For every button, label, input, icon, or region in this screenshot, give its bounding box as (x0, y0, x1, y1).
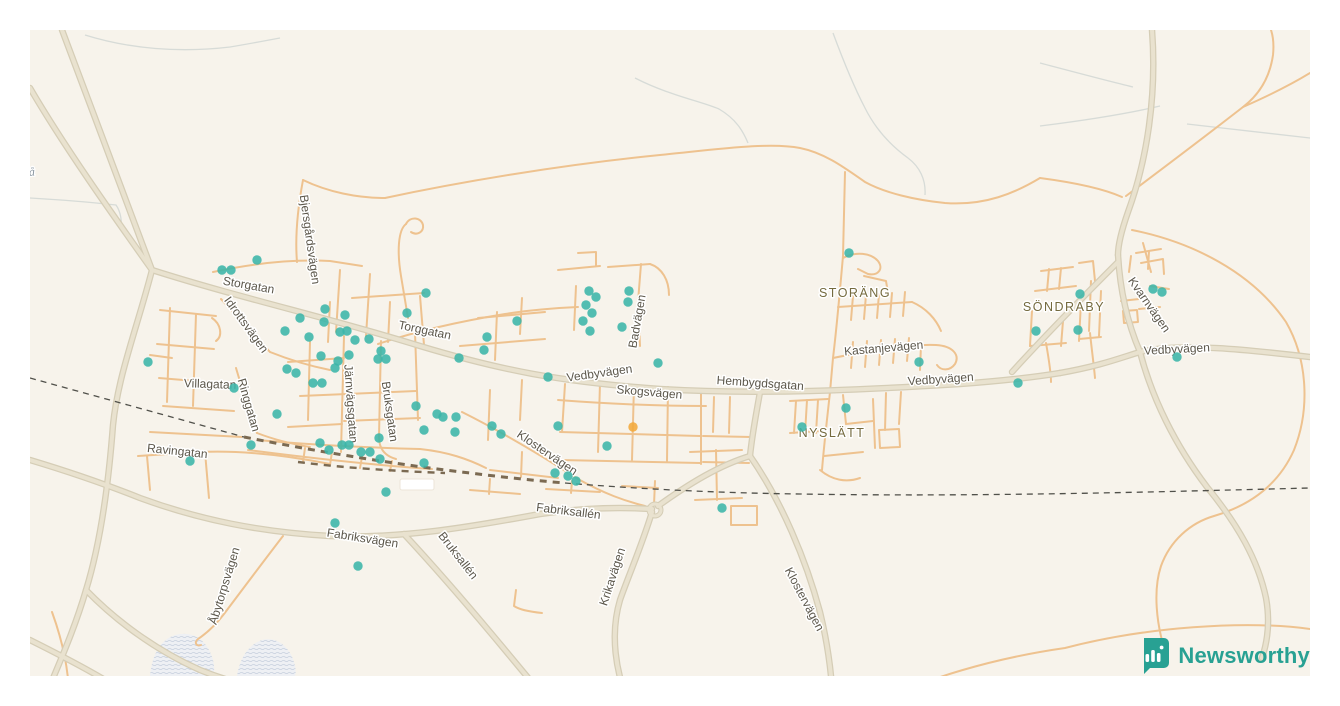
map-marker[interactable] (374, 433, 383, 442)
map-marker[interactable] (419, 458, 428, 467)
map-marker[interactable] (282, 364, 291, 373)
map-marker[interactable] (543, 372, 552, 381)
map-marker[interactable] (317, 378, 326, 387)
map-marker[interactable] (1031, 326, 1040, 335)
map-marker[interactable] (344, 350, 353, 359)
map-marker[interactable] (402, 308, 411, 317)
map-marker[interactable] (479, 345, 488, 354)
map-marker[interactable] (280, 326, 289, 335)
map-marker[interactable] (482, 332, 491, 341)
map-marker[interactable] (295, 313, 304, 322)
map-marker[interactable] (316, 351, 325, 360)
map-marker[interactable] (217, 265, 226, 274)
map-marker[interactable] (591, 292, 600, 301)
map-marker[interactable] (844, 248, 853, 257)
map-marker[interactable] (628, 422, 637, 431)
area-label: NYSLÄTT (799, 426, 866, 440)
newsworthy-chart-pin-icon (1139, 638, 1169, 674)
map-marker[interactable] (320, 304, 329, 313)
map-marker[interactable] (342, 326, 351, 335)
map-marker[interactable] (454, 353, 463, 362)
area-label: SÖNDRABY (1023, 300, 1105, 314)
map-marker[interactable] (617, 322, 626, 331)
map-screenshot: StorgatanIdrottsvägenBjersgårdsvägenVill… (0, 0, 1340, 706)
map-marker[interactable] (1148, 284, 1157, 293)
map-marker[interactable] (272, 409, 281, 418)
map-marker[interactable] (623, 297, 632, 306)
newsworthy-logo-text: Newsworthy (1178, 643, 1310, 669)
map-marker[interactable] (229, 383, 238, 392)
map-marker[interactable] (653, 358, 662, 367)
map-marker[interactable] (376, 346, 385, 355)
map-marker[interactable] (340, 310, 349, 319)
map-marker[interactable] (487, 421, 496, 430)
map-marker[interactable] (381, 487, 390, 496)
map-marker[interactable] (563, 471, 572, 480)
map-marker[interactable] (324, 445, 333, 454)
map-marker[interactable] (450, 427, 459, 436)
map-marker[interactable] (841, 403, 850, 412)
map-marker[interactable] (624, 286, 633, 295)
map-marker[interactable] (330, 363, 339, 372)
map-marker[interactable] (797, 422, 806, 431)
map-marker[interactable] (411, 401, 420, 410)
map-marker[interactable] (1075, 289, 1084, 298)
map-marker[interactable] (373, 354, 382, 363)
map-marker[interactable] (496, 429, 505, 438)
map-marker[interactable] (291, 368, 300, 377)
map-marker[interactable] (451, 412, 460, 421)
building-footprint (400, 479, 434, 490)
map-marker[interactable] (1073, 325, 1082, 334)
map-marker[interactable] (353, 561, 362, 570)
map-marker[interactable] (578, 316, 587, 325)
map-marker[interactable] (1172, 352, 1181, 361)
map-marker[interactable] (344, 440, 353, 449)
map-marker[interactable] (330, 518, 339, 527)
map-marker[interactable] (304, 332, 313, 341)
map-marker[interactable] (602, 441, 611, 450)
map-marker[interactable] (585, 326, 594, 335)
map-marker[interactable] (581, 300, 590, 309)
map-marker[interactable] (587, 308, 596, 317)
map-marker[interactable] (571, 476, 580, 485)
map-marker[interactable] (421, 288, 430, 297)
map-marker[interactable] (356, 447, 365, 456)
map-marker[interactable] (1157, 287, 1166, 296)
map-marker[interactable] (375, 454, 384, 463)
map-canvas[interactable]: StorgatanIdrottsvägenBjersgårdsvägenVill… (0, 0, 1340, 706)
map-marker[interactable] (246, 440, 255, 449)
map-marker[interactable] (226, 265, 235, 274)
map-marker[interactable] (438, 412, 447, 421)
map-marker[interactable] (553, 421, 562, 430)
map-marker[interactable] (319, 317, 328, 326)
map-marker[interactable] (350, 335, 359, 344)
map-marker[interactable] (315, 438, 324, 447)
map-marker[interactable] (185, 456, 194, 465)
map-marker[interactable] (1013, 378, 1022, 387)
newsworthy-logo[interactable]: Newsworthy (1139, 638, 1310, 674)
map-marker[interactable] (381, 354, 390, 363)
map-marker[interactable] (512, 316, 521, 325)
area-label: STORÄNG (819, 286, 891, 300)
water-label: e å (20, 165, 35, 180)
map-marker[interactable] (365, 447, 374, 456)
map-marker[interactable] (419, 425, 428, 434)
map-marker[interactable] (143, 357, 152, 366)
map-marker[interactable] (914, 357, 923, 366)
map-marker[interactable] (252, 255, 261, 264)
map-marker[interactable] (717, 503, 726, 512)
map-marker[interactable] (550, 468, 559, 477)
street-label: Villagatan (184, 376, 237, 392)
map-marker[interactable] (364, 334, 373, 343)
map-marker[interactable] (308, 378, 317, 387)
